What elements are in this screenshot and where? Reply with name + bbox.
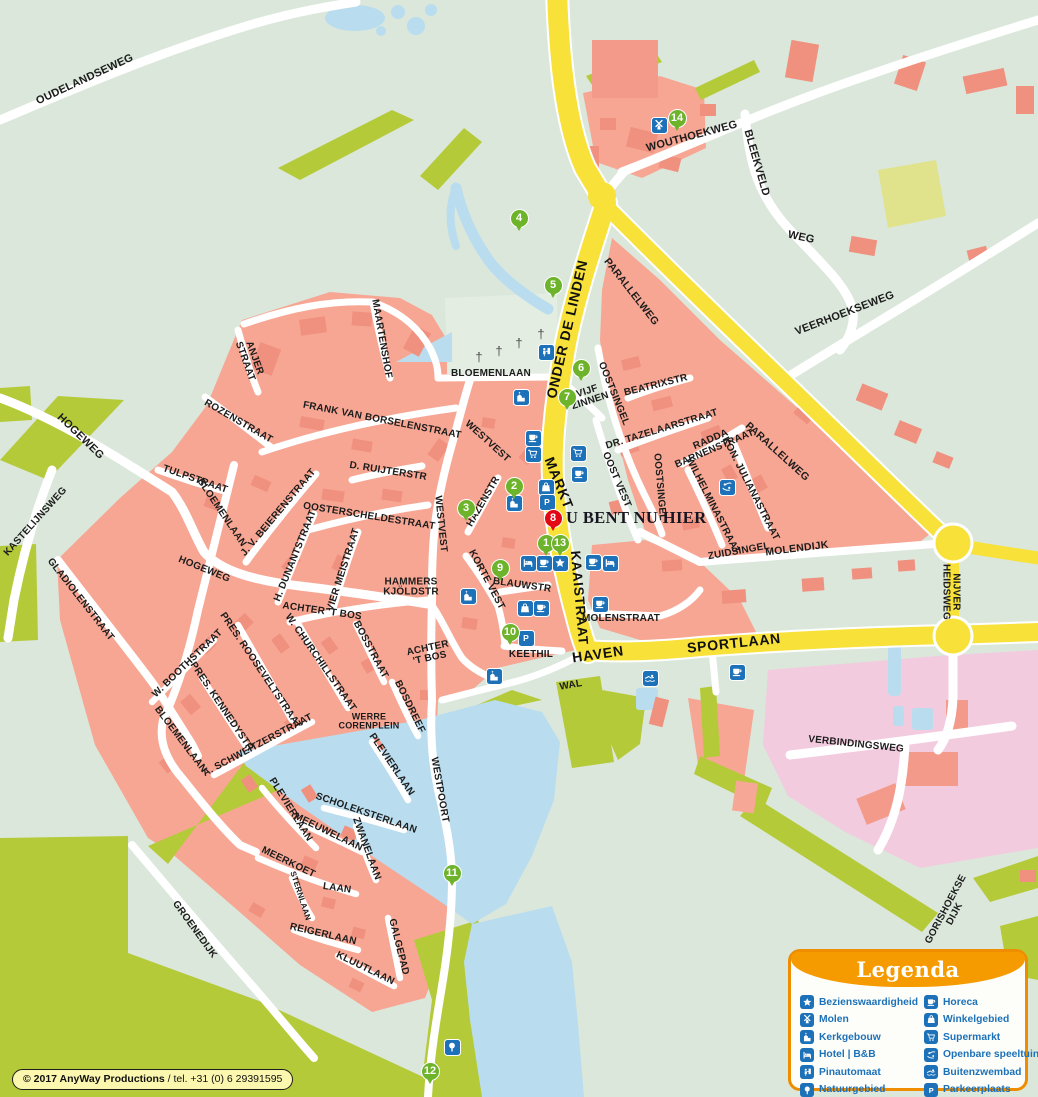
poi-marker-9: 9 bbox=[491, 559, 510, 578]
swimmer-icon bbox=[924, 1065, 938, 1079]
poi-marker-10: 10 bbox=[501, 623, 520, 642]
legend-item-label: Molen bbox=[819, 1014, 849, 1025]
poi-marker-4: 4 bbox=[510, 209, 529, 228]
poi-marker-2: 2 bbox=[505, 477, 524, 496]
legend-item-label: Winkelgebied bbox=[943, 1014, 1009, 1025]
windmill-icon bbox=[800, 1013, 814, 1027]
bed-icon bbox=[800, 1048, 814, 1062]
playground-icon bbox=[924, 1048, 938, 1062]
bag-icon bbox=[924, 1013, 938, 1027]
copyright-owner: © 2017 AnyWay Productions bbox=[23, 1073, 165, 1085]
svg-text:P: P bbox=[929, 1086, 934, 1095]
cart-icon bbox=[924, 1030, 938, 1044]
legend-column-right: HorecaWinkelgebiedSupermarktOpenbare spe… bbox=[924, 995, 1038, 1097]
legend-item-label: Hotel | B&B bbox=[819, 1049, 876, 1060]
legend-item-label: Supermarkt bbox=[943, 1032, 1000, 1043]
legend-item-natuurgebied: Natuurgebied bbox=[800, 1083, 918, 1097]
poi-marker-14: 14 bbox=[668, 109, 687, 128]
legend-item-label: Kerkgebouw bbox=[819, 1032, 881, 1043]
legend-column-left: BezienswaardigheidMolenKerkgebouwHotel |… bbox=[800, 995, 918, 1097]
cup-icon bbox=[924, 995, 938, 1009]
poi-marker-7: 7 bbox=[558, 388, 577, 407]
poi-marker-13: 13 bbox=[551, 534, 570, 553]
legend-item-label: Bezienswaardigheid bbox=[819, 997, 918, 1008]
legend-item-kerkgebouw: Kerkgebouw bbox=[800, 1030, 918, 1044]
tree-icon bbox=[800, 1083, 814, 1097]
poi-marker-12: 12 bbox=[421, 1062, 440, 1081]
legend-item-openbare-speeltuin: Openbare speeltuin bbox=[924, 1048, 1038, 1062]
parking-icon: P bbox=[924, 1083, 938, 1097]
you-are-here-marker-8: 8 bbox=[544, 509, 563, 528]
legend-item-label: Parkeerplaats bbox=[943, 1084, 1011, 1095]
legend-item-horeca: Horeca bbox=[924, 995, 1038, 1009]
legend-item-pinautomaat: Pinautomaat bbox=[800, 1065, 918, 1079]
legend-header: Legenda bbox=[791, 952, 1025, 987]
legend-item-molen: Molen bbox=[800, 1013, 918, 1027]
legend-item-bezienswaardigheid: Bezienswaardigheid bbox=[800, 995, 918, 1009]
poi-marker-3: 3 bbox=[457, 499, 476, 518]
legend-item-label: Natuurgebied bbox=[819, 1084, 885, 1095]
route-markers: 1234567891011121314 bbox=[0, 0, 1038, 1097]
poi-marker-5: 5 bbox=[544, 276, 563, 295]
legend-item-buitenzwembad: Buitenzwembad bbox=[924, 1065, 1038, 1079]
legend-item-label: Horeca bbox=[943, 997, 978, 1008]
poi-marker-6: 6 bbox=[572, 359, 591, 378]
poi-marker-11: 11 bbox=[443, 864, 462, 883]
legend-panel: Legenda BezienswaardigheidMolenKerkgebou… bbox=[788, 949, 1028, 1091]
legend-item-parkeerplaats: PParkeerplaats bbox=[924, 1083, 1038, 1097]
legend-item-supermarkt: Supermarkt bbox=[924, 1030, 1038, 1044]
legend-body: BezienswaardigheidMolenKerkgebouwHotel |… bbox=[791, 987, 1025, 1097]
you-are-here-label: U BENT NU HIER bbox=[566, 508, 707, 528]
legend-item-label: Buitenzwembad bbox=[943, 1067, 1021, 1078]
copyright-phone: / tel. +31 (0) 6 29391595 bbox=[165, 1073, 283, 1085]
legend-item-winkelgebied: Winkelgebied bbox=[924, 1013, 1038, 1027]
legend-title: Legenda bbox=[856, 957, 959, 982]
legend-item-label: Openbare speeltuin bbox=[943, 1049, 1038, 1060]
star-icon bbox=[800, 995, 814, 1009]
legend-item-hotel-b-b: Hotel | B&B bbox=[800, 1048, 918, 1062]
church-icon bbox=[800, 1030, 814, 1044]
legend-item-label: Pinautomaat bbox=[819, 1067, 881, 1078]
copyright-note: © 2017 AnyWay Productions / tel. +31 (0)… bbox=[12, 1069, 293, 1090]
atm-icon bbox=[800, 1065, 814, 1079]
town-map: OUDELANDSEWEGWOUTHOEKWEGBLEEKVELDWEGVEER… bbox=[0, 0, 1038, 1097]
